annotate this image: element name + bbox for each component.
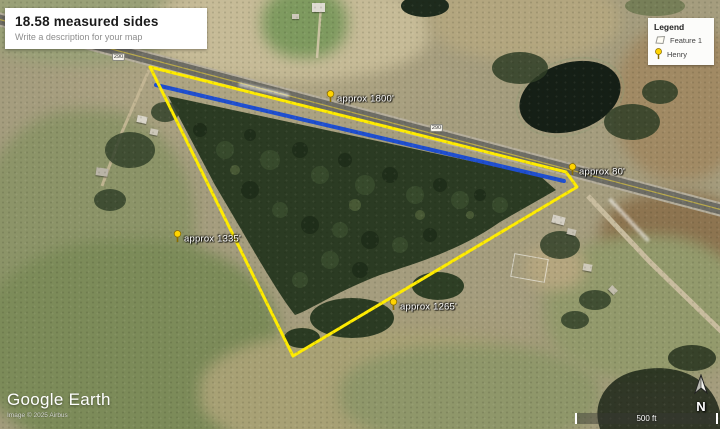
pushpin-icon (654, 48, 663, 60)
imagery-attribution: Image © 2025 Airbus (7, 412, 68, 419)
pushpin-icon (173, 230, 182, 243)
google-earth-logo: Google Earth (7, 390, 111, 410)
north-arrow-icon (692, 374, 710, 396)
map-title: 18.58 measured sides (15, 14, 197, 29)
driveway (317, 6, 321, 58)
scale-bar: 500 ft (575, 413, 718, 424)
legend-item-feature1[interactable]: Feature 1 (654, 35, 708, 45)
map-feature-layer (0, 0, 720, 429)
pushpin-icon (568, 163, 577, 176)
secondary-road (588, 196, 720, 332)
compass: N (691, 374, 711, 414)
google-earth-map-canvas[interactable]: 290 290 approx 1800' approx 80' approx 1… (0, 0, 720, 429)
pushpin-icon (389, 298, 398, 311)
legend-item-henry[interactable]: Henry (654, 48, 708, 60)
measurement-label-east: approx 80' (579, 167, 625, 178)
pond (401, 0, 449, 17)
building (582, 263, 592, 271)
building (312, 3, 325, 12)
legend: Legend Feature 1 Henry (648, 18, 714, 65)
measurement-label-southeast: approx 1265' (400, 302, 457, 313)
measurement-label-west: approx 1335' (184, 234, 241, 245)
pushpin-west-side[interactable] (173, 230, 182, 243)
pushpin-icon (326, 90, 335, 103)
pushpin-east-side[interactable] (568, 163, 577, 176)
highway-shield: 290 (112, 53, 125, 61)
legend-header: Legend (654, 22, 708, 32)
building (96, 167, 109, 177)
pushpin-southeast-side[interactable] (389, 298, 398, 311)
polygon-outline-icon (654, 35, 666, 45)
highway-shield: 290 (430, 124, 443, 132)
map-description-placeholder[interactable]: Write a description for your map (15, 32, 197, 42)
pushpin-north-side[interactable] (326, 90, 335, 103)
legend-item-label: Feature 1 (670, 36, 702, 45)
driveway (102, 70, 149, 186)
building (292, 14, 299, 19)
compass-north-label: N (691, 399, 711, 414)
map-title-box: 18.58 measured sides Write a description… (5, 8, 207, 49)
measurement-label-north: approx 1800' (337, 94, 394, 105)
legend-item-label: Henry (667, 50, 687, 59)
